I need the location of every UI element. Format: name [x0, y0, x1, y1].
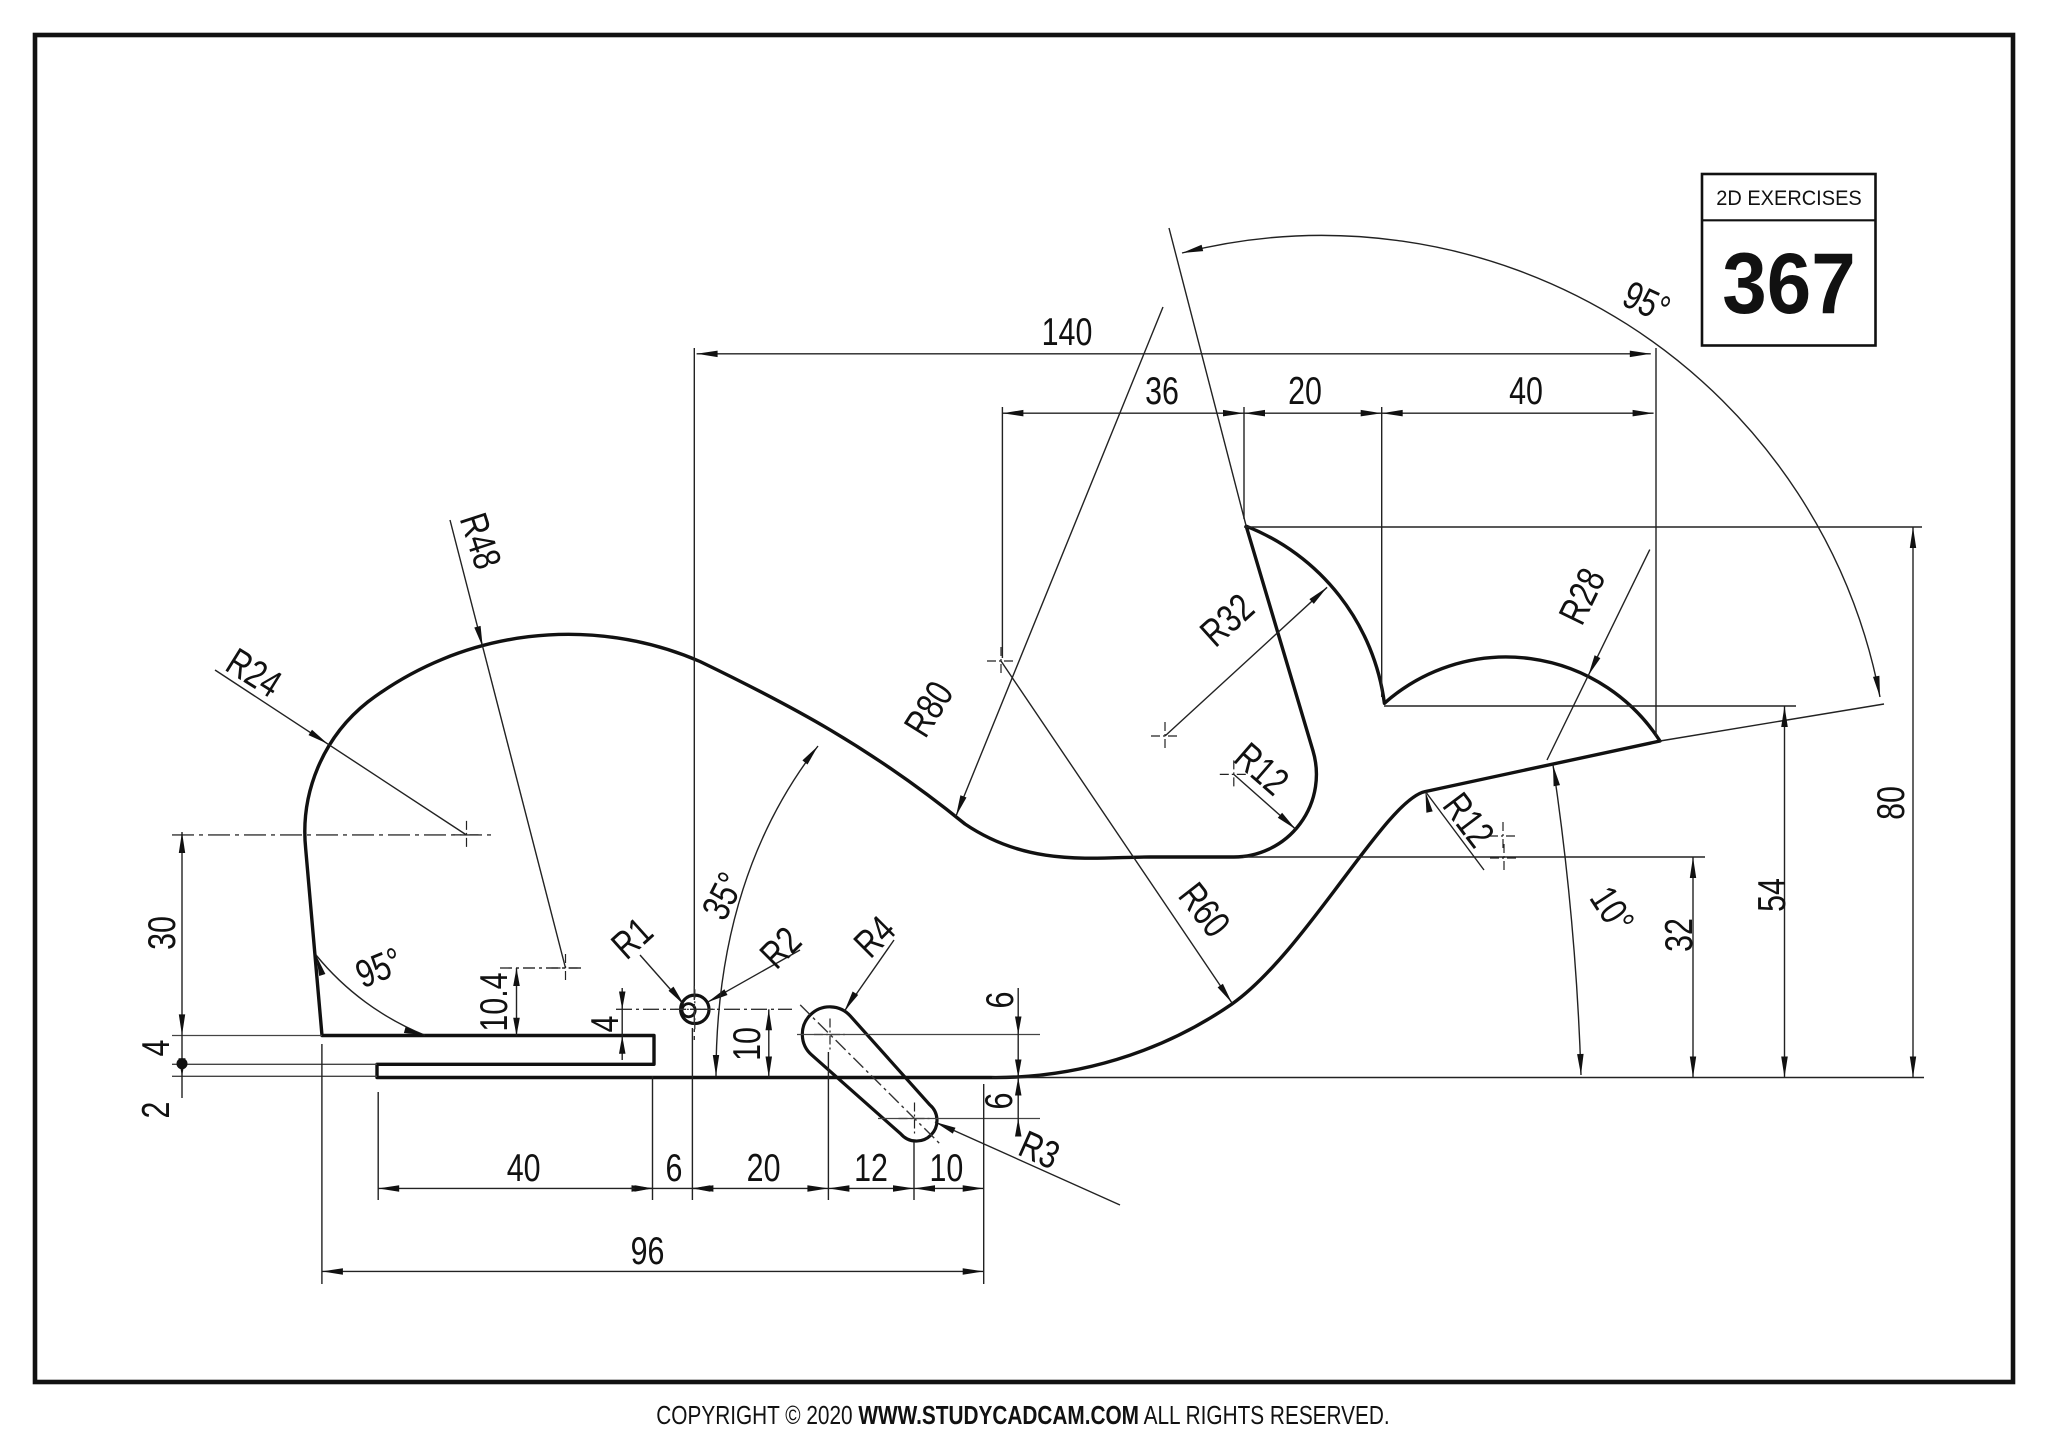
svg-text:10: 10 [929, 1146, 963, 1189]
svg-text:6: 6 [978, 992, 1021, 1009]
svg-text:367: 367 [1722, 235, 1855, 331]
svg-text:4: 4 [134, 1040, 177, 1057]
svg-text:12: 12 [854, 1146, 888, 1189]
svg-text:80: 80 [1869, 786, 1912, 820]
svg-text:6: 6 [666, 1146, 683, 1189]
svg-text:10.4: 10.4 [472, 972, 515, 1031]
svg-text:4: 4 [583, 1016, 626, 1033]
svg-text:140: 140 [1042, 310, 1093, 353]
svg-text:2D EXERCISES: 2D EXERCISES [1716, 186, 1862, 210]
svg-text:54: 54 [1750, 878, 1793, 912]
svg-text:10: 10 [725, 1027, 768, 1061]
svg-text:32: 32 [1657, 918, 1700, 952]
svg-text:40: 40 [507, 1146, 541, 1189]
svg-text:20: 20 [1288, 369, 1322, 412]
svg-text:20: 20 [747, 1146, 781, 1189]
svg-text:36: 36 [1145, 369, 1179, 412]
svg-text:6: 6 [977, 1093, 1020, 1110]
svg-text:COPYRIGHT © 2020 WWW.STUDYCADC: COPYRIGHT © 2020 WWW.STUDYCADCAM.COM ALL… [656, 1401, 1389, 1430]
svg-text:40: 40 [1509, 369, 1543, 412]
svg-text:2: 2 [134, 1102, 177, 1119]
svg-text:30: 30 [140, 916, 183, 950]
svg-text:96: 96 [631, 1229, 665, 1272]
